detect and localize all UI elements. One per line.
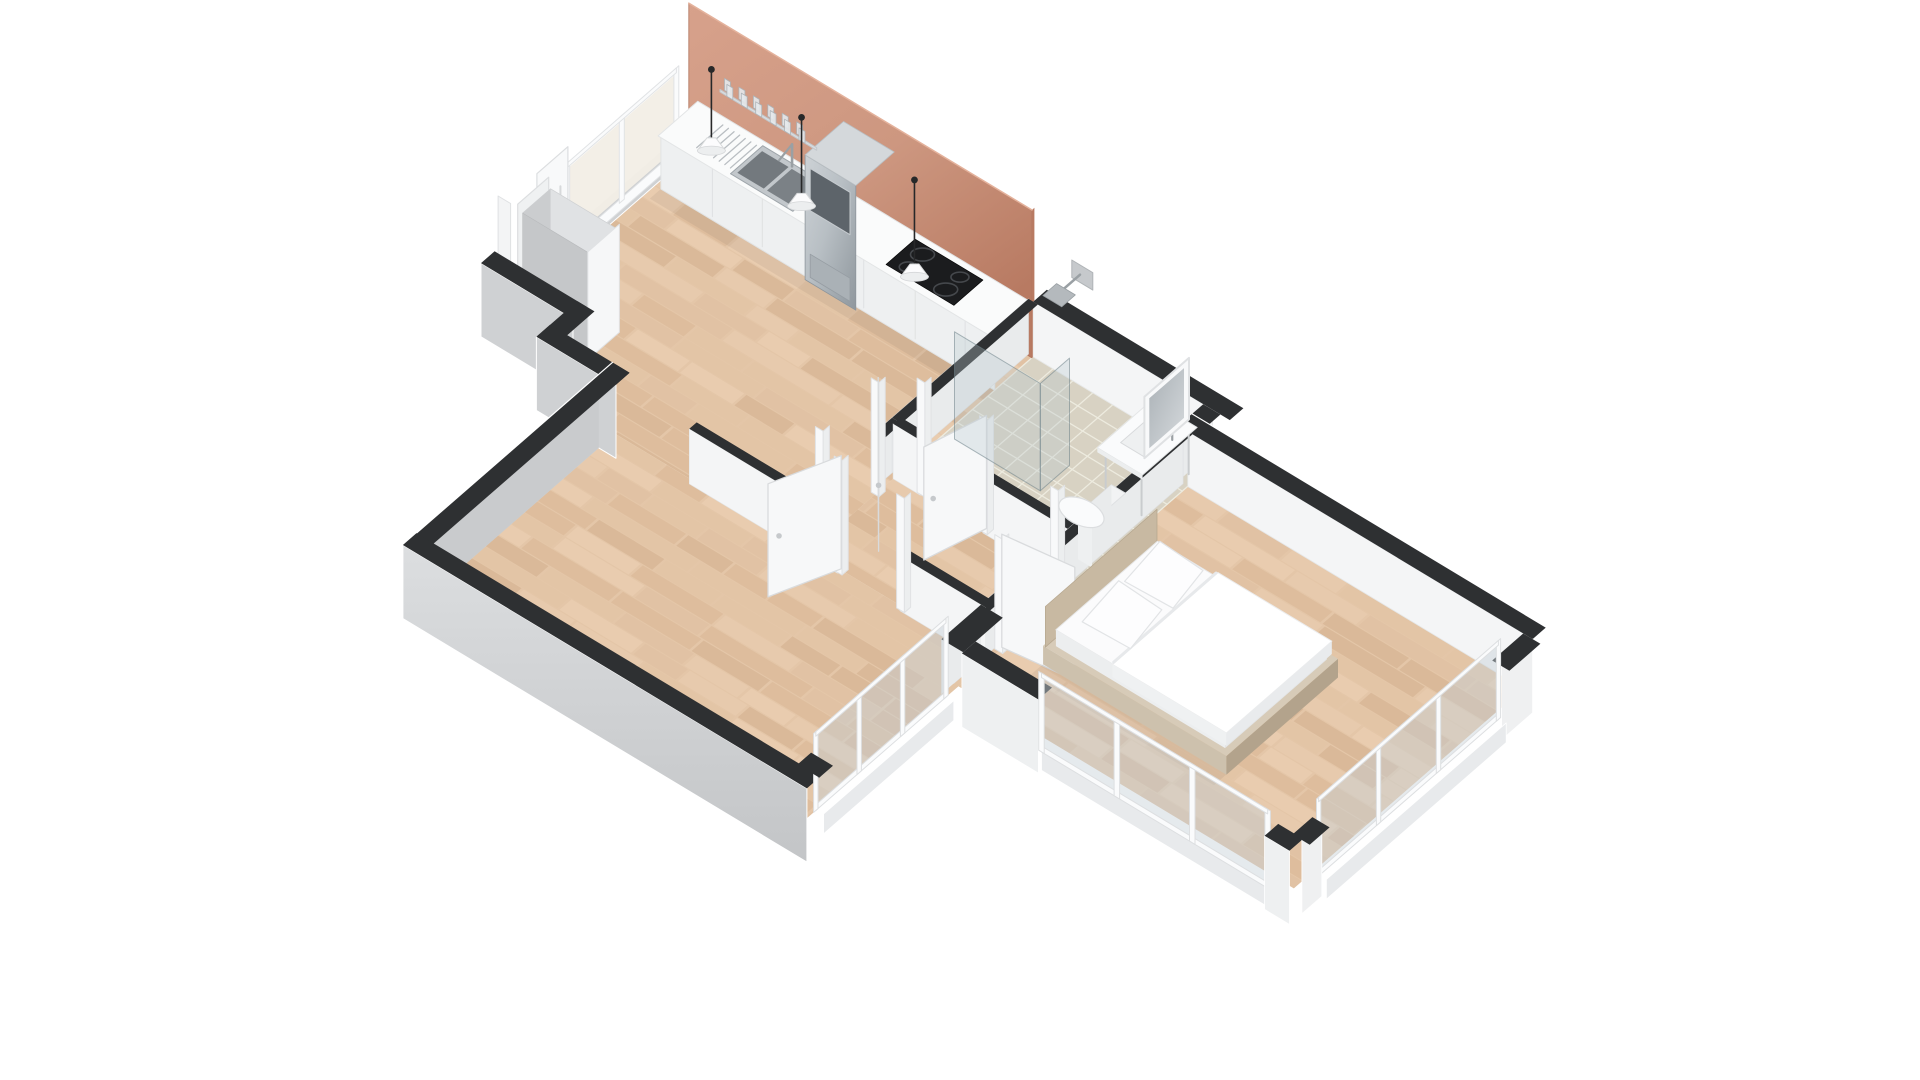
floorplan-svg bbox=[0, 0, 1920, 1080]
floorplan-canvas bbox=[0, 0, 1920, 1080]
shower-head bbox=[1043, 260, 1093, 307]
